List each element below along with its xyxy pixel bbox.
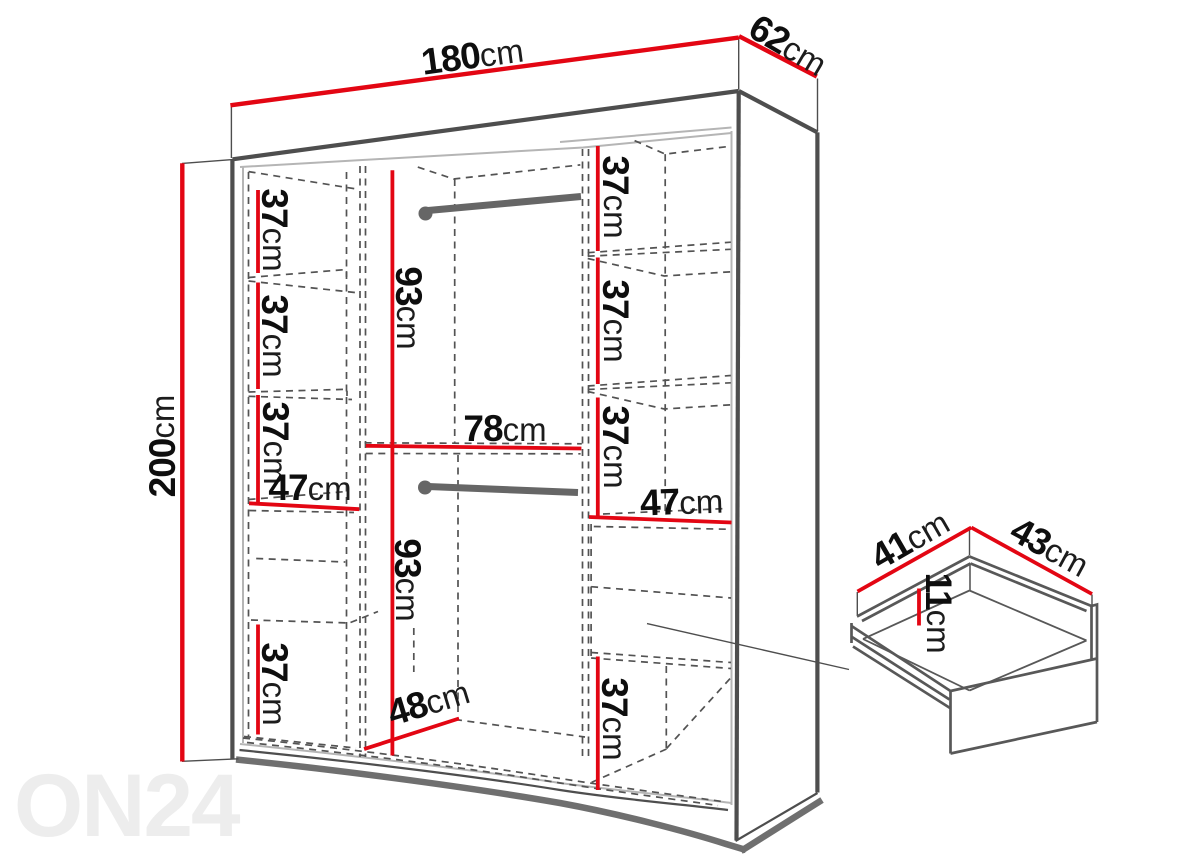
svg-text:93cm: 93cm — [388, 266, 429, 349]
svg-text:37cm: 37cm — [594, 677, 635, 760]
svg-text:37cm: 37cm — [254, 188, 295, 271]
svg-text:37cm: 37cm — [254, 294, 295, 377]
svg-text:47cm: 47cm — [268, 467, 351, 508]
svg-text:37cm: 37cm — [595, 405, 636, 488]
svg-text:93cm: 93cm — [387, 538, 428, 621]
svg-text:200cm: 200cm — [142, 395, 183, 498]
svg-text:37cm: 37cm — [254, 642, 295, 725]
svg-text:ON24: ON24 — [14, 755, 241, 855]
svg-text:78cm: 78cm — [463, 408, 546, 449]
svg-text:11cm: 11cm — [918, 572, 959, 653]
svg-text:37cm: 37cm — [595, 155, 636, 238]
svg-text:37cm: 37cm — [595, 279, 636, 362]
svg-text:47cm: 47cm — [639, 480, 724, 524]
